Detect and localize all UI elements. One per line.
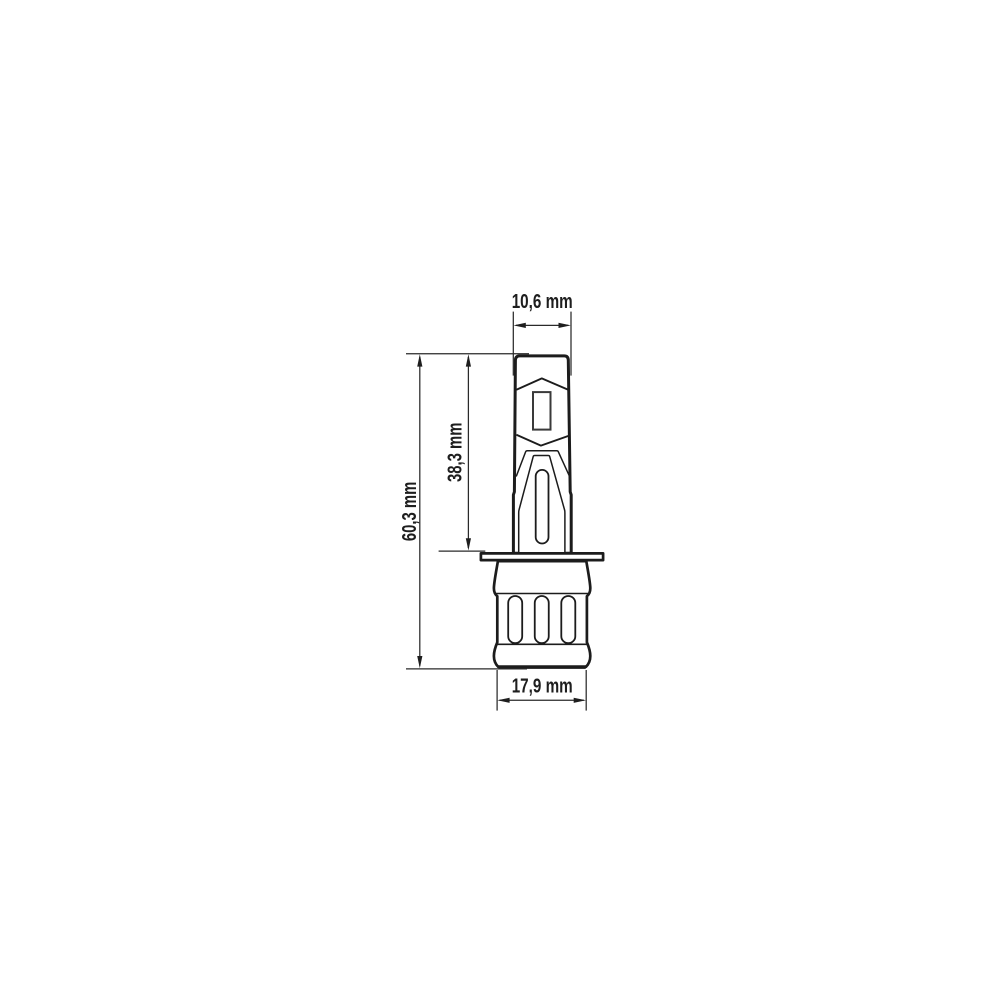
svg-text:38,3 mm: 38,3 mm: [445, 423, 467, 483]
svg-text:10,6 mm: 10,6 mm: [512, 291, 573, 313]
svg-text:60,3 mm: 60,3 mm: [399, 482, 421, 542]
svg-text:17,9 mm: 17,9 mm: [512, 676, 573, 698]
